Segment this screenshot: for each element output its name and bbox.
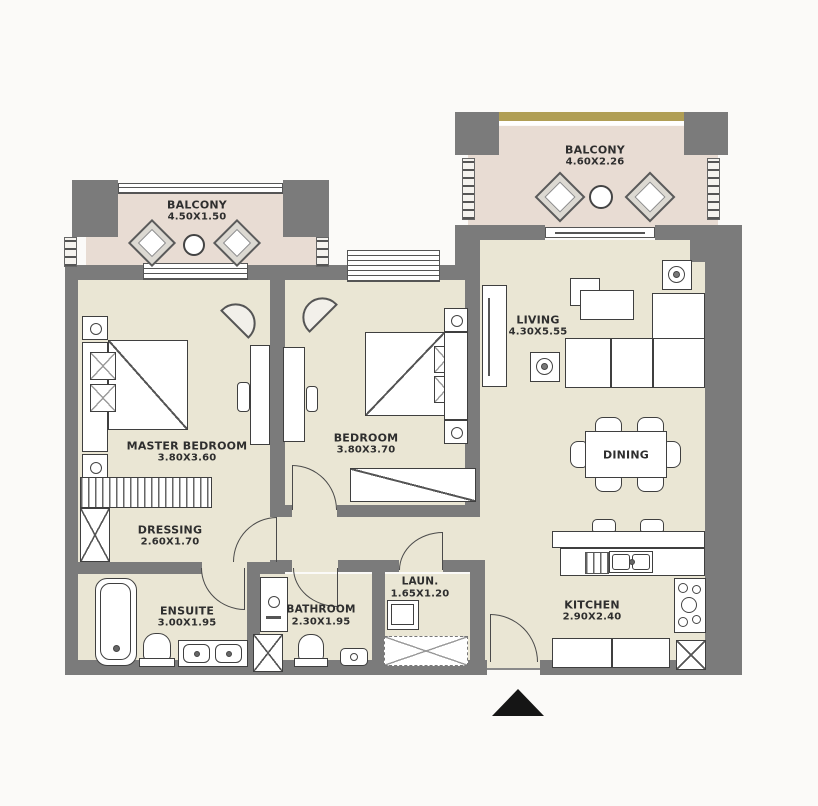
vanity-sink-2 bbox=[215, 644, 242, 663]
room-name: DRESSING bbox=[138, 523, 202, 536]
balcony-right-rail-left bbox=[462, 158, 475, 220]
kitchen-sink bbox=[609, 551, 653, 573]
room-name: LAUN. bbox=[391, 576, 450, 589]
bathroom-toilet bbox=[298, 634, 324, 661]
shower-bar bbox=[266, 616, 281, 619]
bedroom-nightstand-bottom bbox=[444, 420, 468, 444]
sink-basin-1 bbox=[612, 554, 630, 570]
burner bbox=[678, 617, 688, 627]
bathroom-toilet-base bbox=[294, 658, 328, 667]
balcony-right-rail-right bbox=[707, 158, 720, 220]
room-label-dining: DINING bbox=[603, 448, 649, 461]
tv-line bbox=[488, 298, 490, 376]
bedroom-desk bbox=[283, 347, 305, 442]
master-desk-chair bbox=[237, 382, 250, 412]
wall-dressing-stub bbox=[270, 560, 285, 574]
room-dims: 4.50X1.50 bbox=[167, 212, 227, 224]
bathroom-sink bbox=[340, 648, 368, 666]
room-dims: 3.80X3.70 bbox=[334, 445, 399, 457]
room-label-living: LIVING 4.30X5.55 bbox=[509, 313, 568, 338]
washer-inner bbox=[391, 604, 414, 625]
lamp-icon bbox=[90, 323, 102, 335]
room-name: MASTER BEDROOM bbox=[127, 439, 248, 452]
kitchen-cabinet-1 bbox=[552, 638, 612, 668]
wall-left bbox=[65, 265, 78, 675]
wall-top-living-a bbox=[455, 225, 545, 240]
entrance-arrow-icon bbox=[492, 689, 544, 716]
balcony-left-table bbox=[183, 234, 205, 256]
room-dims: 2.90X2.40 bbox=[563, 612, 622, 624]
chair-cushion bbox=[223, 229, 251, 257]
room-label-master-bedroom: MASTER BEDROOM 3.80X3.60 bbox=[127, 439, 248, 464]
plant-dot bbox=[541, 363, 548, 370]
dining-chair-bottom-2 bbox=[637, 476, 664, 492]
dining-chair-right bbox=[665, 441, 681, 468]
sofa-cushion-line bbox=[610, 339, 612, 387]
room-label-balcony-left: BALCONY 4.50X1.50 bbox=[167, 198, 227, 223]
burner bbox=[678, 583, 688, 593]
room-name: BALCONY bbox=[167, 198, 227, 211]
room-label-dressing: DRESSING 2.60X1.70 bbox=[138, 523, 202, 548]
sink-dot bbox=[350, 653, 358, 661]
tv-unit bbox=[482, 285, 507, 387]
dish-rack bbox=[585, 552, 609, 574]
dining-table: DINING bbox=[585, 431, 667, 478]
wall-hall-bottom-a bbox=[285, 560, 292, 572]
room-label-ensuite: ENSUITE 3.00X1.95 bbox=[158, 604, 217, 629]
ensuite-toilet-base bbox=[139, 658, 175, 667]
balcony-left-rail-right bbox=[316, 237, 329, 267]
plant-dot bbox=[673, 271, 680, 278]
dining-chair-left bbox=[570, 441, 586, 468]
bedroom-wardrobe bbox=[350, 468, 476, 502]
ensuite-bathtub bbox=[95, 578, 137, 666]
lamp-icon bbox=[451, 427, 463, 439]
kitchen-stove bbox=[674, 578, 706, 633]
room-label-laundry: LAUN. 1.65X1.20 bbox=[391, 576, 450, 601]
room-label-bathroom: BATHROOM 2.30X1.95 bbox=[286, 604, 355, 629]
wall-bedroom-bottom-a bbox=[270, 505, 292, 517]
bathroom-shaft bbox=[253, 634, 283, 672]
room-name: BATHROOM bbox=[286, 604, 355, 617]
room-dims: 2.60X1.70 bbox=[138, 537, 202, 549]
wall-right bbox=[705, 240, 742, 675]
room-name: BEDROOM bbox=[334, 431, 399, 444]
balcony-left-top-rail bbox=[118, 183, 283, 194]
wall-top-living-b bbox=[655, 225, 742, 240]
balcony-left-rail-left bbox=[64, 237, 77, 267]
kitchen-shaft bbox=[676, 640, 706, 670]
room-dims: 4.30X5.55 bbox=[509, 327, 568, 339]
bedroom-nightstand-top bbox=[444, 308, 468, 332]
room-label-balcony-right: BALCONY 4.60X2.26 bbox=[565, 143, 625, 168]
pillar-balcony-left-2 bbox=[283, 180, 329, 237]
burner bbox=[692, 615, 701, 624]
faucet-dot bbox=[629, 559, 635, 565]
kitchen-cabinet-2 bbox=[612, 638, 670, 668]
wall-ensuite-top-a bbox=[65, 562, 202, 574]
master-bed bbox=[108, 340, 188, 430]
master-desk bbox=[250, 345, 270, 445]
bedroom-bed bbox=[365, 332, 445, 416]
room-label-bedroom: BEDROOM 3.80X3.70 bbox=[334, 431, 399, 456]
wall-hall-bottom-c bbox=[443, 560, 485, 572]
wall-top-master-b bbox=[248, 265, 347, 280]
sofa-cushion-line bbox=[652, 339, 654, 387]
living-plant-1 bbox=[530, 352, 560, 382]
balcony-right-floor bbox=[468, 126, 718, 230]
wall-top-right-column bbox=[690, 240, 705, 262]
master-nightstand-top bbox=[82, 316, 108, 340]
wall-laundry-entry-divider bbox=[470, 572, 485, 675]
balcony-right-table bbox=[589, 185, 613, 209]
wall-bedroom-bottom-b bbox=[337, 505, 480, 517]
lamp-icon bbox=[451, 315, 463, 327]
entry-closet bbox=[384, 636, 468, 666]
faucet-dot bbox=[194, 651, 200, 657]
bathroom-shower bbox=[260, 577, 288, 632]
room-name: KITCHEN bbox=[563, 598, 622, 611]
window-living-slider bbox=[545, 227, 655, 238]
room-label-kitchen: KITCHEN 2.90X2.40 bbox=[563, 598, 622, 623]
chair-cushion bbox=[544, 181, 575, 212]
vanity-sink-1 bbox=[183, 644, 210, 663]
ensuite-toilet bbox=[143, 633, 171, 661]
wall-hall-bottom-b bbox=[338, 560, 399, 572]
burner bbox=[681, 597, 697, 613]
burner bbox=[692, 585, 701, 594]
master-pillow-2 bbox=[90, 384, 116, 412]
chair-cushion bbox=[634, 181, 665, 212]
kitchen-bar-counter bbox=[552, 531, 705, 548]
kitchen-counter bbox=[560, 548, 705, 576]
dressing-wardrobe-side bbox=[80, 508, 110, 562]
bed-throw-line bbox=[366, 333, 444, 415]
tub-drain bbox=[113, 645, 120, 652]
room-name: LIVING bbox=[509, 313, 568, 326]
slider-line bbox=[555, 232, 646, 234]
floor-plan: DINING bbox=[0, 0, 818, 806]
window-master-bedroom bbox=[143, 263, 248, 280]
coffee-table-2 bbox=[580, 290, 634, 320]
room-dims: 3.80X3.60 bbox=[127, 453, 248, 465]
room-name: ENSUITE bbox=[158, 604, 217, 617]
bedroom-bed-headboard bbox=[444, 332, 468, 420]
wall-top-master-a bbox=[65, 265, 143, 280]
living-plant-2 bbox=[662, 260, 692, 290]
shower-drain bbox=[268, 596, 280, 608]
room-dims: 3.00X1.95 bbox=[158, 618, 217, 630]
bedroom-desk-chair bbox=[306, 386, 318, 412]
room-dims: 4.60X2.26 bbox=[565, 157, 625, 169]
dining-chair-bottom-1 bbox=[595, 476, 622, 492]
washing-machine bbox=[387, 600, 419, 630]
room-dims: 2.30X1.95 bbox=[286, 616, 355, 628]
room-dims: 1.65X1.20 bbox=[391, 588, 450, 600]
pillar-balcony-right-2 bbox=[684, 112, 728, 155]
dressing-wardrobe-top bbox=[80, 477, 212, 508]
pillar-balcony-left-1 bbox=[72, 180, 118, 237]
room-name: BALCONY bbox=[565, 143, 625, 156]
pillar-balcony-right-1 bbox=[455, 112, 499, 155]
balcony-right-top-band bbox=[499, 112, 684, 125]
bed-throw-line bbox=[109, 341, 187, 429]
master-pillow-1 bbox=[90, 352, 116, 380]
sofa-corner-section bbox=[652, 293, 705, 343]
sofa-main-section bbox=[565, 338, 705, 388]
faucet-dot bbox=[226, 651, 232, 657]
lamp-icon bbox=[90, 462, 102, 474]
window-bedroom bbox=[347, 250, 440, 282]
chair-cushion bbox=[138, 229, 166, 257]
ensuite-vanity bbox=[178, 640, 248, 667]
